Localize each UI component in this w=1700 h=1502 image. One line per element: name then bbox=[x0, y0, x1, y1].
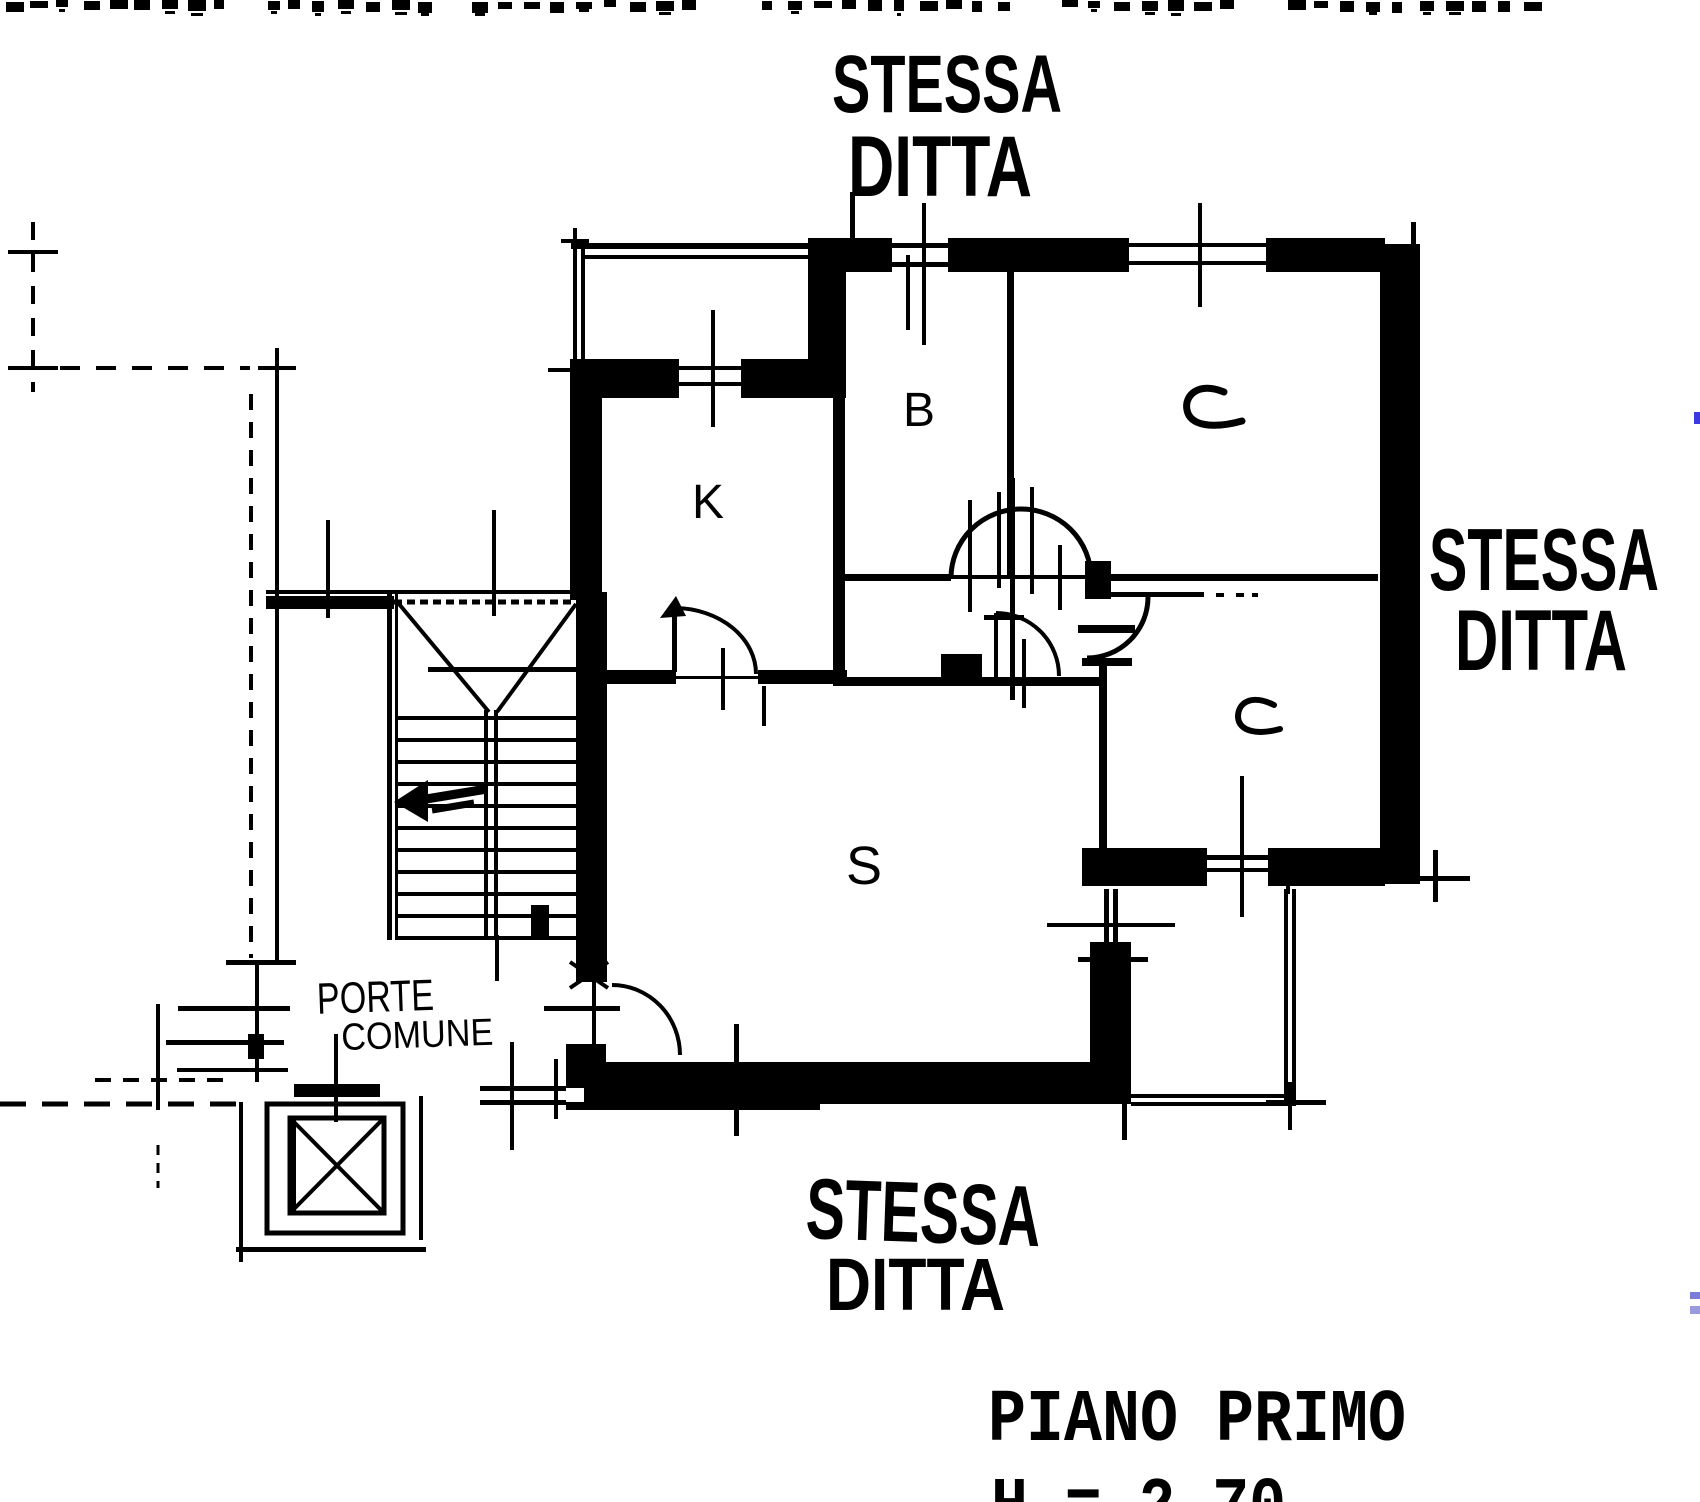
svg-text:DITTA: DITTA bbox=[1455, 593, 1627, 689]
svg-text:DITTA: DITTA bbox=[848, 119, 1032, 215]
svg-text:PIANO PRIMO: PIANO PRIMO bbox=[988, 1379, 1406, 1463]
svg-text:S: S bbox=[846, 836, 882, 896]
svg-text:H = 2.70: H = 2.70 bbox=[991, 1467, 1286, 1502]
svg-text:K: K bbox=[692, 476, 724, 529]
svg-text:COMUNE: COMUNE bbox=[341, 1012, 494, 1059]
svg-text:DITTA: DITTA bbox=[826, 1243, 1005, 1326]
svg-text:STESSA: STESSA bbox=[832, 39, 1062, 130]
svg-text:B: B bbox=[903, 384, 935, 437]
